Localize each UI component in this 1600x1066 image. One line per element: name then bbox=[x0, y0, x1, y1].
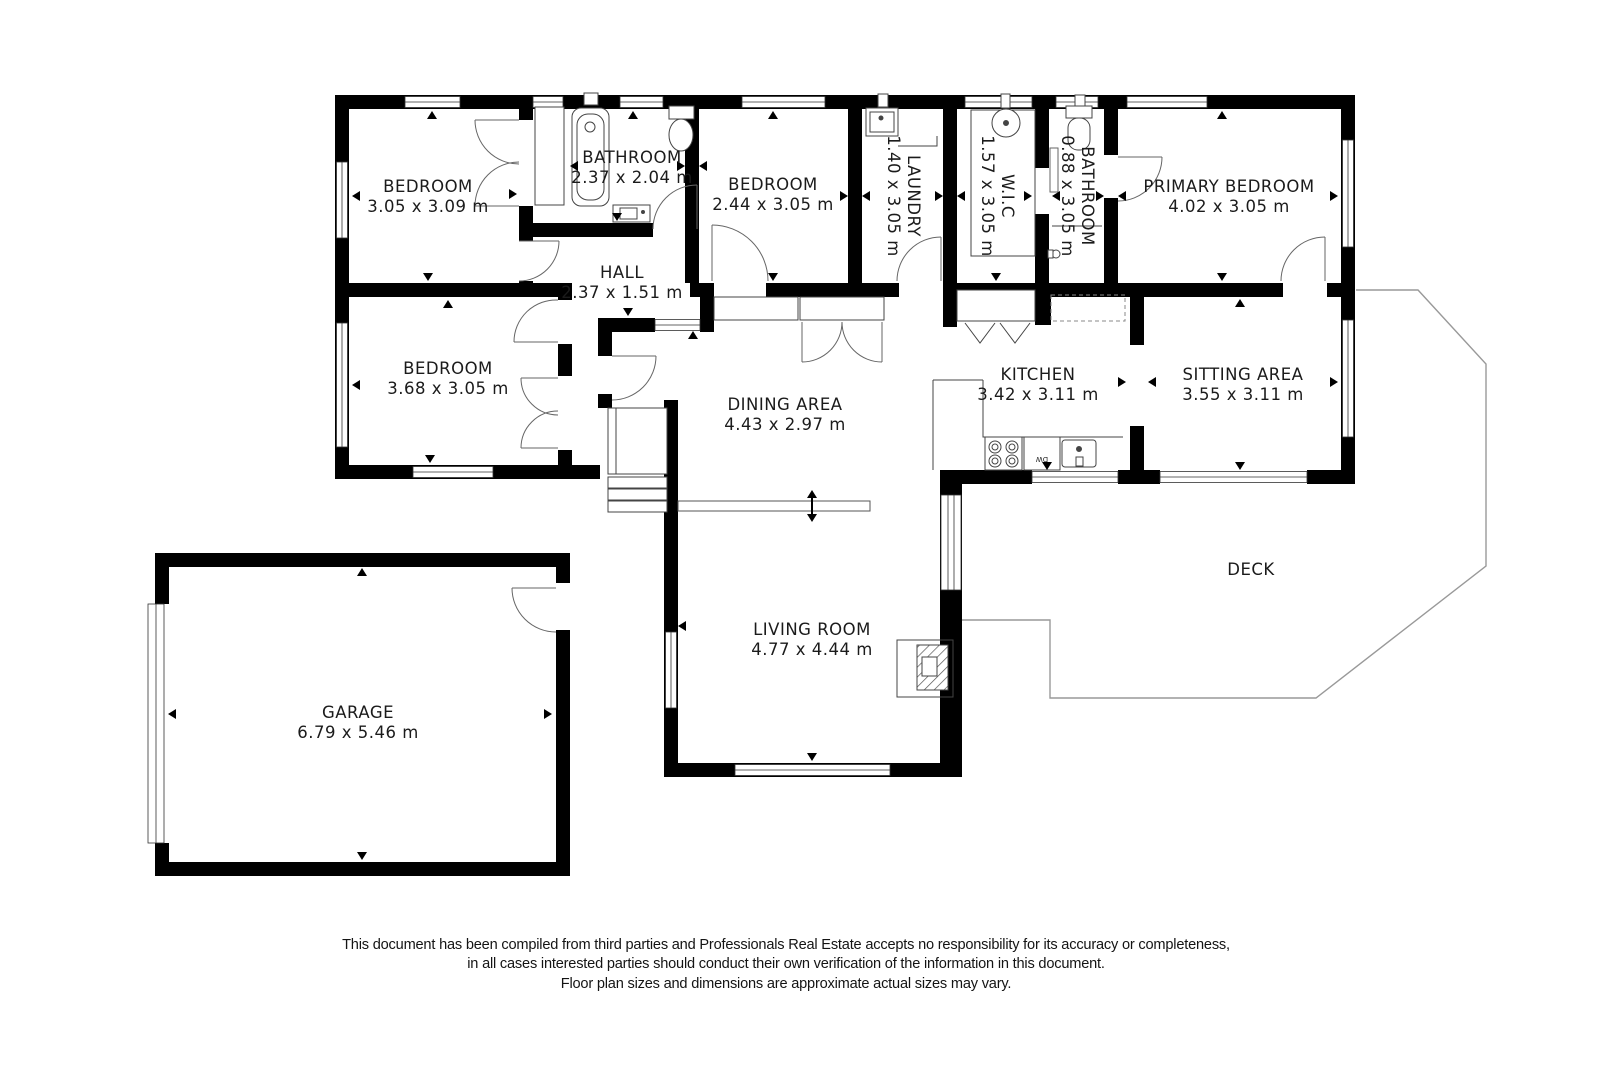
steps bbox=[608, 477, 667, 512]
label-kitchen: KITCHEN 3.42 x 3.11 m bbox=[977, 365, 1099, 404]
disclaimer-line: This document has been compiled from thi… bbox=[186, 936, 1386, 955]
room-dims: 3.05 x 3.09 m bbox=[367, 197, 489, 216]
floor-plan: BEDROOM 3.05 x 3.09 m BATHROOM 2.37 x 2.… bbox=[0, 0, 1600, 1066]
window bbox=[413, 467, 493, 478]
window bbox=[337, 162, 348, 238]
door bbox=[519, 241, 559, 281]
room-name: BATHROOM bbox=[1078, 146, 1097, 246]
window bbox=[620, 97, 663, 108]
disclaimer-line: Floor plan sizes and dimensions are appr… bbox=[186, 975, 1386, 994]
label-bedroom-3: BEDROOM 3.68 x 3.05 m bbox=[387, 359, 509, 398]
label-bathroom-2: BATHROOM 0.88 x 3.05 m bbox=[1058, 135, 1097, 257]
label-laundry: LAUNDRY 1.40 x 3.05 m bbox=[884, 135, 923, 257]
pantry bbox=[957, 290, 1035, 343]
label-primary-bedroom: PRIMARY BEDROOM 4.02 x 3.05 m bbox=[1143, 177, 1314, 216]
room-dims: 3.42 x 3.11 m bbox=[977, 385, 1099, 404]
window bbox=[405, 97, 460, 108]
label-hall: HALL 2.37 x 1.51 m bbox=[561, 263, 683, 302]
double-door bbox=[802, 322, 882, 362]
garage-door bbox=[148, 604, 164, 843]
dishwasher-label: DW bbox=[1036, 455, 1048, 463]
hall-opening bbox=[655, 320, 700, 331]
stove bbox=[985, 437, 1022, 470]
room-name: LIVING ROOM bbox=[753, 620, 871, 639]
window bbox=[1160, 472, 1307, 483]
room-name: BEDROOM bbox=[403, 359, 493, 378]
closet bbox=[800, 297, 884, 320]
disclaimer: This document has been compiled from thi… bbox=[186, 936, 1386, 994]
closet-door bbox=[521, 411, 558, 448]
room-name: PRIMARY BEDROOM bbox=[1143, 177, 1314, 196]
door bbox=[612, 356, 656, 400]
dishwasher bbox=[1024, 437, 1060, 470]
room-dims: 2.44 x 3.05 m bbox=[712, 195, 834, 214]
kitchen-sink bbox=[1062, 440, 1096, 467]
room-name: DINING AREA bbox=[727, 395, 842, 414]
room-name: SITTING AREA bbox=[1183, 365, 1304, 384]
window bbox=[666, 632, 677, 708]
room-dims: 1.40 x 3.05 m bbox=[884, 135, 903, 257]
closet-door bbox=[475, 120, 519, 164]
label-living-room: LIVING ROOM 4.77 x 4.44 m bbox=[751, 620, 873, 659]
door-leaf bbox=[1050, 148, 1058, 192]
window bbox=[1127, 97, 1207, 108]
label-bedroom-1: BEDROOM 3.05 x 3.09 m bbox=[367, 177, 489, 216]
label-dining-area: DINING AREA 4.43 x 2.97 m bbox=[724, 395, 846, 434]
window bbox=[337, 323, 348, 447]
label-sitting-area: SITTING AREA 3.55 x 3.11 m bbox=[1182, 365, 1304, 404]
label-wic: W.I.C 1.57 x 3.05 m bbox=[978, 135, 1017, 257]
door bbox=[712, 225, 768, 281]
room-dims: 2.37 x 1.51 m bbox=[561, 283, 683, 302]
room-name: BEDROOM bbox=[383, 177, 473, 196]
room-dims: 4.77 x 4.44 m bbox=[751, 640, 873, 659]
fireplace bbox=[897, 640, 953, 697]
room-labels: BEDROOM 3.05 x 3.09 m BATHROOM 2.37 x 2.… bbox=[297, 135, 1314, 742]
label-bathroom-1: BATHROOM 2.37 x 2.04 m bbox=[571, 148, 693, 187]
room-dims: 4.43 x 2.97 m bbox=[724, 415, 846, 434]
window bbox=[742, 97, 825, 108]
room-name: HALL bbox=[600, 263, 644, 282]
room-name: DECK bbox=[1227, 560, 1275, 579]
window bbox=[1343, 140, 1354, 247]
door bbox=[514, 300, 558, 342]
room-name: GARAGE bbox=[322, 703, 394, 722]
room-name: W.I.C bbox=[998, 174, 1017, 218]
faucet-icon bbox=[584, 93, 598, 105]
room-dims: 0.88 x 3.05 m bbox=[1058, 135, 1077, 257]
label-deck: DECK bbox=[1227, 560, 1275, 579]
door bbox=[512, 588, 556, 632]
window bbox=[533, 97, 563, 108]
window bbox=[1343, 320, 1354, 437]
toilet bbox=[669, 106, 694, 151]
door bbox=[1281, 237, 1325, 281]
closet bbox=[535, 107, 564, 205]
room-dims: 3.55 x 3.11 m bbox=[1182, 385, 1304, 404]
room-dims: 4.02 x 3.05 m bbox=[1168, 197, 1290, 216]
railing bbox=[678, 501, 870, 511]
room-dims: 1.57 x 3.05 m bbox=[978, 135, 997, 257]
room-name: LAUNDRY bbox=[904, 155, 923, 237]
room-dims: 6.79 x 5.46 m bbox=[297, 723, 419, 742]
label-garage: GARAGE 6.79 x 5.46 m bbox=[297, 703, 419, 742]
sliding-door-window bbox=[941, 495, 961, 590]
overhead-dashed bbox=[1051, 295, 1125, 321]
room-name: KITCHEN bbox=[1001, 365, 1076, 384]
floor-plan-page: BEDROOM 3.05 x 3.09 m BATHROOM 2.37 x 2.… bbox=[0, 0, 1600, 1066]
window bbox=[965, 97, 1032, 108]
room-name: BATHROOM bbox=[582, 148, 682, 167]
disclaimer-line: in all cases interested parties should c… bbox=[186, 955, 1386, 974]
window bbox=[1032, 472, 1118, 483]
deck-outline bbox=[962, 290, 1486, 698]
cistern-icon bbox=[1075, 95, 1085, 106]
room-name: BEDROOM bbox=[728, 175, 818, 194]
closet bbox=[608, 408, 667, 474]
room-dims: 2.37 x 2.04 m bbox=[571, 168, 693, 187]
room-dims: 3.68 x 3.05 m bbox=[387, 379, 509, 398]
closet bbox=[714, 297, 798, 320]
window bbox=[735, 765, 890, 776]
label-bedroom-2: BEDROOM 2.44 x 3.05 m bbox=[712, 175, 834, 214]
closet-door bbox=[521, 378, 558, 415]
